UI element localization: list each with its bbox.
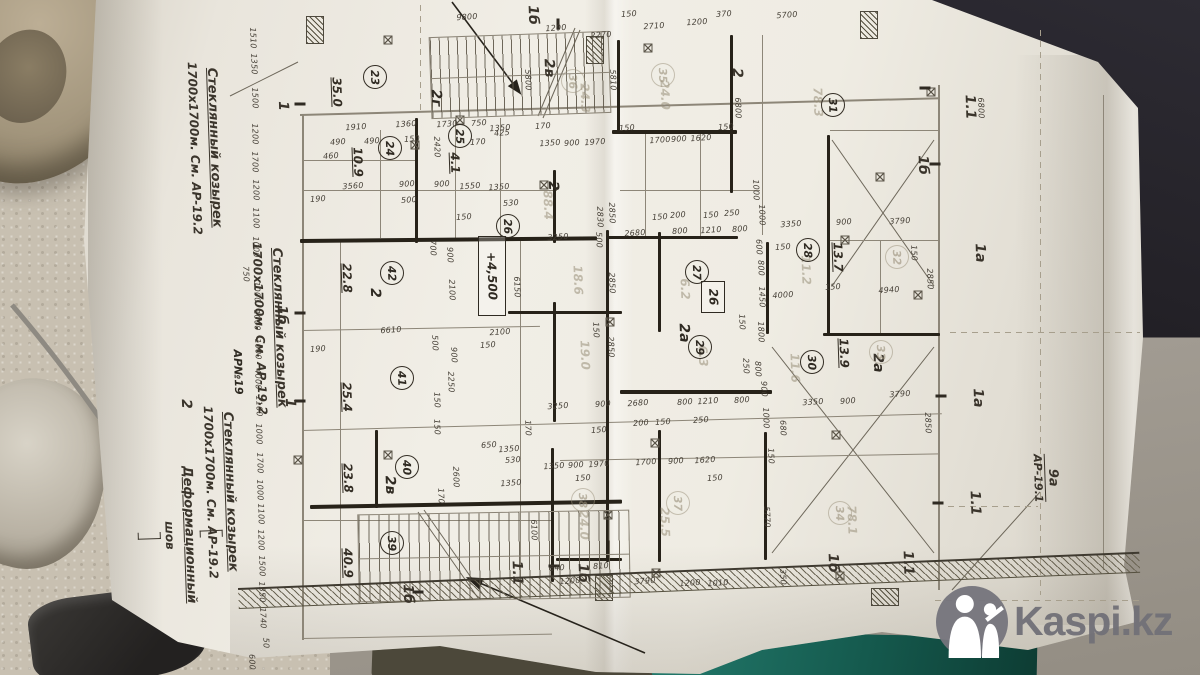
dimension-label: 1360 <box>395 119 417 129</box>
dimension-label: 200 <box>670 210 686 220</box>
dimension-label: 600 <box>247 654 257 670</box>
zone-label: 2 <box>367 288 383 298</box>
dimension-label: 800 <box>734 395 750 405</box>
dimension-label: 1620 <box>690 133 712 143</box>
dimension-label: 600 <box>754 239 764 255</box>
dimension-label: 150 <box>775 242 791 252</box>
section-hatch-box <box>871 588 899 606</box>
kaspi-logo-icon <box>936 586 1008 658</box>
dimension-label: 5810 <box>608 69 618 90</box>
faint-room-number-circle: 32 <box>885 245 909 269</box>
dimension-label: 190 <box>310 194 326 204</box>
dimension-label: 150 <box>655 417 671 427</box>
dimension-label: 4000 <box>772 290 794 300</box>
room-number-circle: 25 <box>448 124 472 148</box>
dimension-label: 1510 <box>248 27 258 48</box>
dimension-label: 1200 <box>250 123 260 144</box>
dimension-label: 1910 <box>345 122 367 132</box>
axis-label: 1.1 <box>967 490 984 515</box>
elevation-marker: +4,500 <box>478 236 506 316</box>
dimension-label: 700 <box>428 240 438 256</box>
grid-line <box>938 85 940 590</box>
dimension-label: 1200 <box>251 179 261 200</box>
dimension-label: 150 <box>432 392 442 408</box>
dimension-label: 6100 <box>529 519 539 540</box>
room-number-circle: 26 <box>496 214 520 238</box>
grid-line <box>302 190 557 191</box>
axis-tick <box>936 395 947 398</box>
dimension-label: 530 <box>503 198 519 208</box>
grid-line <box>700 133 701 238</box>
dimension-label: 1000 <box>751 179 761 200</box>
room-number: 27 <box>690 264 704 280</box>
room-area-label: 13.7 <box>830 242 845 272</box>
dimension-label: 1010 <box>707 578 729 588</box>
room-number: 34 <box>833 505 847 521</box>
room-area-label: 35.0 <box>329 77 344 107</box>
axis-tick <box>933 502 944 505</box>
dimension-label: 150 <box>575 473 591 483</box>
canopy-note: Стеклянный козырек1700x1700м. См. АР-19.… <box>183 61 227 235</box>
dimension-label: 460 <box>323 151 339 161</box>
wall-segment <box>827 135 830 335</box>
dimension-label: 490 <box>330 137 346 147</box>
dimension-label: 370 <box>716 9 732 19</box>
dimension-label: 1450 <box>757 286 767 307</box>
dimension-label: 2680 <box>627 398 649 408</box>
dimension-label: 2600 <box>451 466 461 487</box>
faint-room-number-circle: 34 <box>828 501 852 525</box>
diffuser-box-icon <box>294 456 303 465</box>
sheet-ref-label: АР№19 <box>231 349 246 395</box>
dimension-label: 500 <box>430 335 440 351</box>
dimension-label: 150 <box>766 448 776 464</box>
dimension-label: 350 <box>778 569 788 585</box>
dimension-label: 3350 <box>780 219 802 229</box>
dimension-label: 150 <box>621 9 637 19</box>
dimension-label: 800 <box>672 226 688 236</box>
dimension-label: 1210 <box>697 396 719 406</box>
dimension-label: 3790 <box>889 389 911 399</box>
room-number: 28 <box>801 242 815 258</box>
dimension-label: 3790 <box>889 216 911 226</box>
dimension-label: 2830 <box>595 206 605 227</box>
zone-label: 2 <box>545 181 561 191</box>
axis-label: 2в <box>541 58 558 77</box>
dimension-label: 810 <box>593 561 609 571</box>
dimension-label: 1210 <box>700 225 722 235</box>
zone-label: 2г <box>428 89 445 107</box>
axis-ref-number: 9a <box>1044 453 1062 502</box>
room-number: 25 <box>453 128 467 144</box>
dimension-label: 1700 <box>635 457 657 467</box>
dimension-label: 150 <box>456 212 472 222</box>
dimension-label: 50 <box>261 638 270 649</box>
dimension-label: 6800 <box>733 97 743 118</box>
grid-line <box>340 240 341 600</box>
dimension-label: 2850 <box>606 336 616 357</box>
room-area-label: 25.4 <box>339 382 354 412</box>
dimension-label: 4940 <box>878 285 900 295</box>
dimension-label: 680 <box>778 420 788 436</box>
note-line: Деформационный <box>177 466 201 604</box>
dimension-label: 900 <box>449 347 459 363</box>
dimension-label: 2850 <box>607 272 617 293</box>
room-number: 30 <box>805 354 819 370</box>
axis-label: 1.1 <box>509 560 526 585</box>
deformation-joint-note: Деформационныйшов <box>135 465 225 605</box>
wall-segment <box>730 35 733 193</box>
room-area-label: 40.9 <box>340 548 355 578</box>
room-number-circle: 23 <box>363 65 387 89</box>
room-number: 26 <box>501 218 515 234</box>
diffuser-box-icon <box>644 44 653 53</box>
dimension-label: 2850 <box>607 202 617 223</box>
dimension-label: 900 <box>671 134 687 144</box>
faint-room-value: 88.4 <box>540 190 555 220</box>
axis-label: 1.1 <box>900 550 917 575</box>
dimension-label: 900 <box>445 247 455 263</box>
dimension-label: 150 <box>404 134 420 144</box>
diffuser-box-icon <box>384 36 393 45</box>
room-number: 32 <box>890 249 904 265</box>
dimension-label: 150 <box>591 425 607 435</box>
dimension-label: 1350 <box>249 53 259 74</box>
axis-dash-line <box>948 506 1038 507</box>
axis-tick <box>930 163 941 166</box>
floor-plan-drawing: 1510135015001200170012001100100075010001… <box>0 0 1200 675</box>
diffuser-box-icon <box>914 291 923 300</box>
dimension-label: 2100 <box>489 327 511 337</box>
dimension-label: 1000 <box>254 423 264 444</box>
dimension-label: 900 <box>668 456 684 466</box>
axis-label: 2 <box>729 68 745 78</box>
dimension-label: 1350 <box>489 123 511 133</box>
dimension-label: 3350 <box>802 397 824 407</box>
room-area-label: 23.8 <box>340 463 355 493</box>
dimension-label: 150 <box>432 419 442 435</box>
dimension-label: 190 <box>310 344 326 354</box>
axis-dash-line <box>1040 30 1041 595</box>
dimension-label: 1740 <box>258 607 268 628</box>
dimension-label: 170 <box>535 121 551 131</box>
dimension-label: 530 <box>505 455 521 465</box>
room-number: 39 <box>385 535 399 551</box>
dimension-label: 1350 <box>488 182 510 192</box>
dimension-label: 2270 <box>590 30 612 40</box>
room-number-circle: 39 <box>380 531 404 555</box>
wall-segment <box>823 333 940 336</box>
dimension-label: 1970 <box>584 137 606 147</box>
dimension-label: 900 <box>399 179 415 189</box>
dimension-label: 1200 <box>686 17 708 27</box>
dimension-label: 3790 <box>634 576 656 586</box>
dimension-label: 900 <box>564 138 580 148</box>
dimension-label: 900 <box>568 460 584 470</box>
wall-segment <box>375 430 378 508</box>
dimension-label: 3250 <box>547 232 569 242</box>
room-area-label: 13.9 <box>836 338 851 368</box>
dimension-label: 1550 <box>459 181 481 191</box>
faint-room-value: 24.0 <box>576 510 591 540</box>
dimension-label: 2850 <box>925 268 935 289</box>
dimension-label: 1700 <box>250 151 260 172</box>
dimension-label: 3250 <box>547 401 569 411</box>
dimension-label: 1800 <box>756 321 766 342</box>
axis-tick <box>920 87 931 90</box>
diffuser-box-icon <box>606 318 615 327</box>
dimension-label: 150 <box>703 210 719 220</box>
axis-label: 1б <box>400 584 417 604</box>
diffuser-box-icon <box>384 451 393 460</box>
room-number-circle: 31 <box>821 93 845 117</box>
dimension-label: 150 <box>707 473 723 483</box>
dimension-label: 1100 <box>251 207 261 228</box>
wall-segment <box>508 311 622 314</box>
dimension-label: 500 <box>401 195 417 205</box>
dimension-label: 1620 <box>694 455 716 465</box>
dimension-label: 2420 <box>432 136 442 157</box>
axis-label: 2 <box>178 399 194 409</box>
dimension-label: 1500 <box>250 87 260 108</box>
dimension-label: 640 <box>549 563 565 573</box>
room-area-label: 4.1 <box>448 152 463 174</box>
diffuser-box-icon <box>832 431 841 440</box>
axis-ref-sheet: АР-19.1 <box>1031 454 1046 503</box>
dimension-label: 1000 <box>761 407 771 428</box>
stair-landing-line <box>359 554 629 560</box>
room-number: 36 <box>566 73 580 89</box>
diffuser-box-icon <box>876 173 885 182</box>
dimension-label: 250 <box>724 208 740 218</box>
room-area-label: 22.8 <box>339 263 354 293</box>
room-number-circle: 41 <box>390 366 414 390</box>
dimension-label: 150 <box>825 282 841 292</box>
dimension-label: 500 <box>594 232 604 248</box>
room-number-circle: 30 <box>800 350 824 374</box>
dimension-label: 150 <box>737 314 747 330</box>
dimension-label: 5800 <box>523 69 533 90</box>
faint-room-number-circle: 37 <box>666 491 690 515</box>
dimension-label: 1350 <box>500 478 522 488</box>
dimension-label: 2100 <box>447 279 457 300</box>
dimension-label: 1970 <box>588 459 610 469</box>
room-area-label: 10.9 <box>350 147 365 177</box>
room-number-circle: 42 <box>380 261 404 285</box>
dimension-label: 1200 <box>256 529 266 550</box>
dimension-label: 1200 <box>679 578 701 588</box>
dimension-label: 750 <box>471 118 487 128</box>
dimension-label: 1500 <box>257 555 267 576</box>
axis-label: 1.1 <box>962 94 979 119</box>
dimension-label: 250 <box>693 415 709 425</box>
dimension-label: 1000 <box>757 204 767 225</box>
axis-ref-label: 9aАР-19.1 <box>1031 453 1062 502</box>
faint-room-number-circle: 33 <box>869 340 893 364</box>
dimension-label: 6150 <box>512 276 522 297</box>
axis-tick <box>295 312 306 315</box>
room-number: 38 <box>576 492 590 508</box>
room-number: 24 <box>383 140 397 156</box>
faint-room-number-circle: 36 <box>561 69 585 93</box>
dimension-label: 900 <box>434 179 450 189</box>
dimension-label: 2250 <box>446 371 456 392</box>
faint-room-value: 19.0 <box>577 340 592 370</box>
axis-label: 1б <box>525 5 542 25</box>
dimension-label: 800 <box>732 224 748 234</box>
room-number: 41 <box>395 370 409 386</box>
photo-of-floor-plan: 1510135015001200170012001100100075010001… <box>0 0 1200 675</box>
axis-label: 1a <box>972 243 989 263</box>
dimension-label: 800 <box>753 361 763 377</box>
dimension-label: 1350 <box>543 461 565 471</box>
room-number: 37 <box>671 495 685 511</box>
dimension-label: 170 <box>436 488 446 504</box>
dimension-label: 150 <box>480 340 496 350</box>
dimension-label: 900 <box>840 396 856 406</box>
dimension-label: 900 <box>836 217 852 227</box>
axis-label: 1 <box>275 101 291 111</box>
section-hatch-box <box>306 16 324 44</box>
room-number: 35 <box>656 67 670 83</box>
faint-room-number-circle: 35 <box>651 63 675 87</box>
dimension-label: 3560 <box>342 181 364 191</box>
room-number: 31 <box>826 97 840 113</box>
boxed-number: 26 <box>706 288 721 305</box>
dimension-label: 1100 <box>256 503 266 524</box>
kaspi-figures-icon <box>936 586 1008 658</box>
dimension-label: 170 <box>470 137 486 147</box>
elevation-value: +4,500 <box>484 252 500 300</box>
axis-label: 1б <box>915 155 932 175</box>
dimension-label: 150 <box>909 245 919 261</box>
room-number: 23 <box>368 69 382 85</box>
diffuser-box-icon <box>651 439 660 448</box>
zone-label: 2в <box>382 475 399 494</box>
dimension-label: 2710 <box>643 21 665 31</box>
axis-label: 1б <box>575 563 592 583</box>
dimension-label: 5700 <box>776 10 798 20</box>
dimension-label: 6610 <box>380 325 402 335</box>
faint-room-number-circle: 38 <box>571 488 595 512</box>
dimension-label: 900 <box>759 381 769 397</box>
deformation-note-box: Деформационныйшов <box>138 466 223 605</box>
room-number: 29 <box>693 339 707 355</box>
dimension-label: 800 <box>677 397 693 407</box>
axis-dash-line <box>950 332 1140 333</box>
dimension-label: 150 <box>591 322 601 338</box>
canopy-note: Стеклянный козырек1700x1700м. См. АР-19.… <box>248 241 292 415</box>
wall-segment <box>620 390 772 394</box>
dimension-label: 1350 <box>257 581 267 602</box>
dimension-label: 900 <box>595 399 611 409</box>
room-number-circle: 29 <box>688 335 712 359</box>
axis-label: 1a <box>970 388 987 408</box>
dimension-label: 150 <box>619 123 635 133</box>
room-number: 42 <box>385 265 399 281</box>
grid-line <box>645 133 646 238</box>
dimension-label: 1700 <box>255 452 265 473</box>
faint-room-value: 18.6 <box>570 265 585 295</box>
dimension-label: 150 <box>652 212 668 222</box>
dimension-label: 250 <box>741 358 751 374</box>
grid-line <box>620 190 760 191</box>
axis-label: 1б <box>825 553 842 573</box>
dimension-label: 2850 <box>923 412 933 433</box>
section-hatch-box <box>860 11 878 39</box>
dimension-label: 1350 <box>539 138 561 148</box>
dimension-label: 150 <box>718 122 734 132</box>
axis-dash-line <box>420 5 421 115</box>
room-number: 40 <box>400 459 414 475</box>
dimension-label: 170 <box>523 420 533 436</box>
room-number-circle: 40 <box>395 455 419 479</box>
wall-segment <box>766 242 769 334</box>
boxed-number-label: 26 <box>701 281 725 313</box>
dimension-label: 2680 <box>624 228 646 238</box>
dimension-label: 5770 <box>762 506 772 527</box>
dimension-label: 1350 <box>498 444 520 454</box>
watermark-text: Kaspi.kz <box>1014 598 1172 645</box>
dimension-label: 200 <box>633 418 649 428</box>
dimension-label: 800 <box>756 260 766 276</box>
room-number: 33 <box>874 344 888 360</box>
grid-line <box>830 130 940 131</box>
dimension-label: 1700 <box>649 135 671 145</box>
room-number-circle: 24 <box>378 136 402 160</box>
wall-segment <box>658 430 661 562</box>
dimension-label: 1000 <box>255 479 265 500</box>
dimension-label: 650 <box>481 440 497 450</box>
room-number-circle: 28 <box>796 238 820 262</box>
dimension-label: 9800 <box>456 12 478 22</box>
dimension-label: 1200 <box>545 23 567 33</box>
grid-line <box>302 114 304 640</box>
wall-segment <box>658 232 661 332</box>
axis-tick <box>295 103 306 106</box>
